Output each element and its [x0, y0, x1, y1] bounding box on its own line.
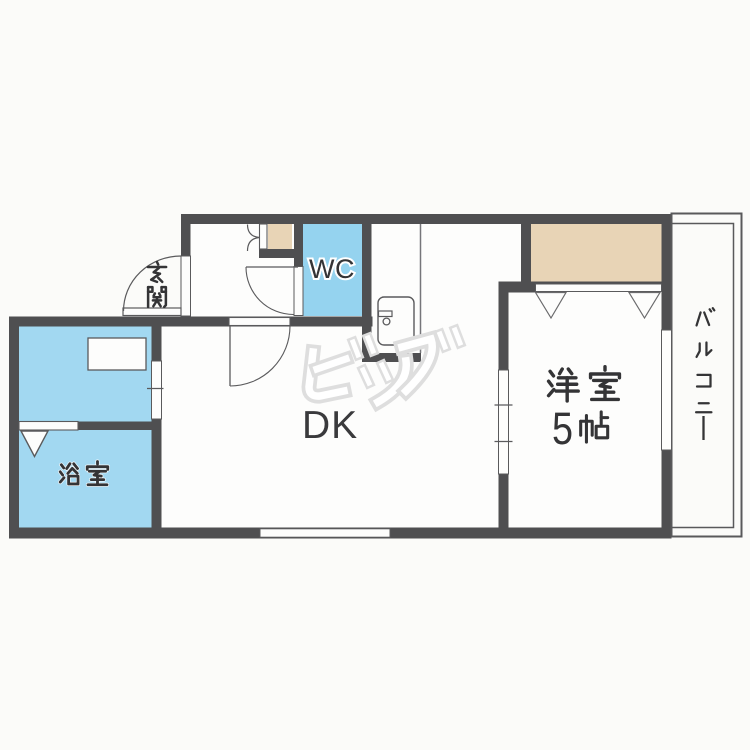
svg-text:WC: WC [309, 254, 355, 284]
svg-text:DK: DK [302, 404, 358, 447]
svg-text:5: 5 [552, 403, 573, 454]
